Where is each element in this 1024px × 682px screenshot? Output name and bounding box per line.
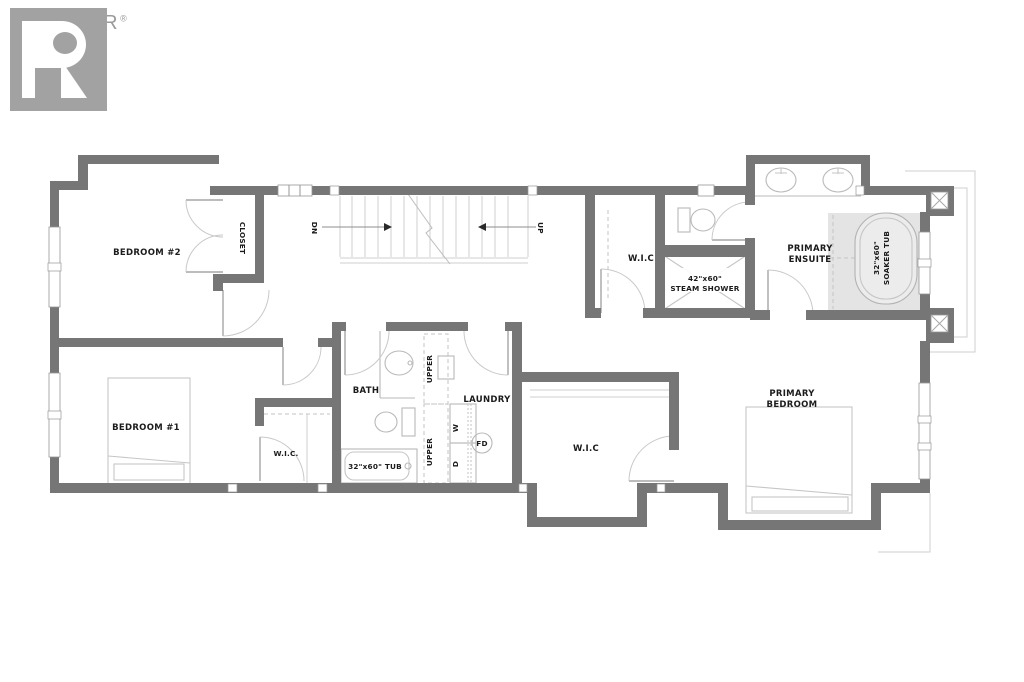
wc-toilet-bowl (691, 209, 715, 231)
primary-bed (746, 407, 852, 513)
floor-drain-label: FD (476, 439, 487, 448)
bath-label: BATH (353, 386, 380, 396)
steam-shower-size: 42"x60" (688, 274, 722, 283)
wic-center-label: W.I.C (573, 444, 599, 454)
floorplan-page: REALTOR® (0, 0, 1024, 682)
bath-sink (385, 351, 413, 375)
stairs-up-label: UP (536, 222, 545, 234)
laundry-label: LAUNDRY (463, 395, 511, 405)
washer-label: W (451, 424, 460, 432)
bath-toilet-tank (402, 408, 415, 436)
bedroom2-door (223, 290, 269, 336)
dryer-label: D (451, 461, 460, 467)
wic-bedroom1-door (260, 437, 304, 481)
wic-top-label: W.I.C (628, 254, 654, 264)
wc-door (712, 202, 750, 240)
laundry-sink (438, 356, 454, 379)
washer-box (450, 404, 476, 443)
walls (50, 155, 954, 530)
window-primary-bedroom (919, 383, 930, 479)
bedroom1-door (283, 347, 321, 385)
laundry-fixtures (424, 334, 492, 483)
bath-door (345, 331, 389, 375)
stairs-down-label: DN (310, 222, 319, 235)
wc-toilet-tank (678, 208, 690, 232)
closet-double-door (186, 200, 223, 272)
bedroom1-label: BEDROOM #1 (112, 423, 180, 433)
primary-bedroom-label-2: BEDROOM (767, 400, 818, 410)
soaker-tub-label: SOAKER TUB (882, 231, 891, 285)
bedroom2-label: BEDROOM #2 (113, 248, 181, 258)
laundry-upper-bottom-label: UPPER (425, 438, 434, 466)
steam-shower-label: STEAM SHOWER (670, 284, 739, 293)
floor-plan: BEDROOM #2 CLOSET DN UP W.I.C 42"x60" ST… (0, 0, 1024, 682)
primary-bedroom-door (629, 436, 674, 481)
bath-fixtures (341, 331, 417, 483)
closet-label: CLOSET (238, 222, 247, 254)
windows (48, 185, 931, 479)
laundry-upper-top-label: UPPER (425, 355, 434, 383)
primary-bedroom-label-1: PRIMARY (769, 389, 815, 399)
staircase (322, 194, 536, 264)
laundry-door (464, 331, 508, 375)
primary-ensuite-label-2: ENSUITE (789, 255, 832, 265)
wc-toilet (678, 208, 715, 232)
window-top (278, 185, 312, 196)
wic-bedroom1-label: W.I.C. (273, 449, 298, 458)
primary-ensuite-label-1: PRIMARY (787, 244, 833, 254)
bath-tub-label: 32"x60" TUB (348, 462, 402, 471)
ensuite-vanity (755, 168, 861, 196)
window-wc (698, 185, 714, 196)
ensuite-door (768, 270, 813, 315)
soaker-tub-size: 32"x60" (872, 241, 881, 275)
bath-toilet (375, 412, 397, 432)
